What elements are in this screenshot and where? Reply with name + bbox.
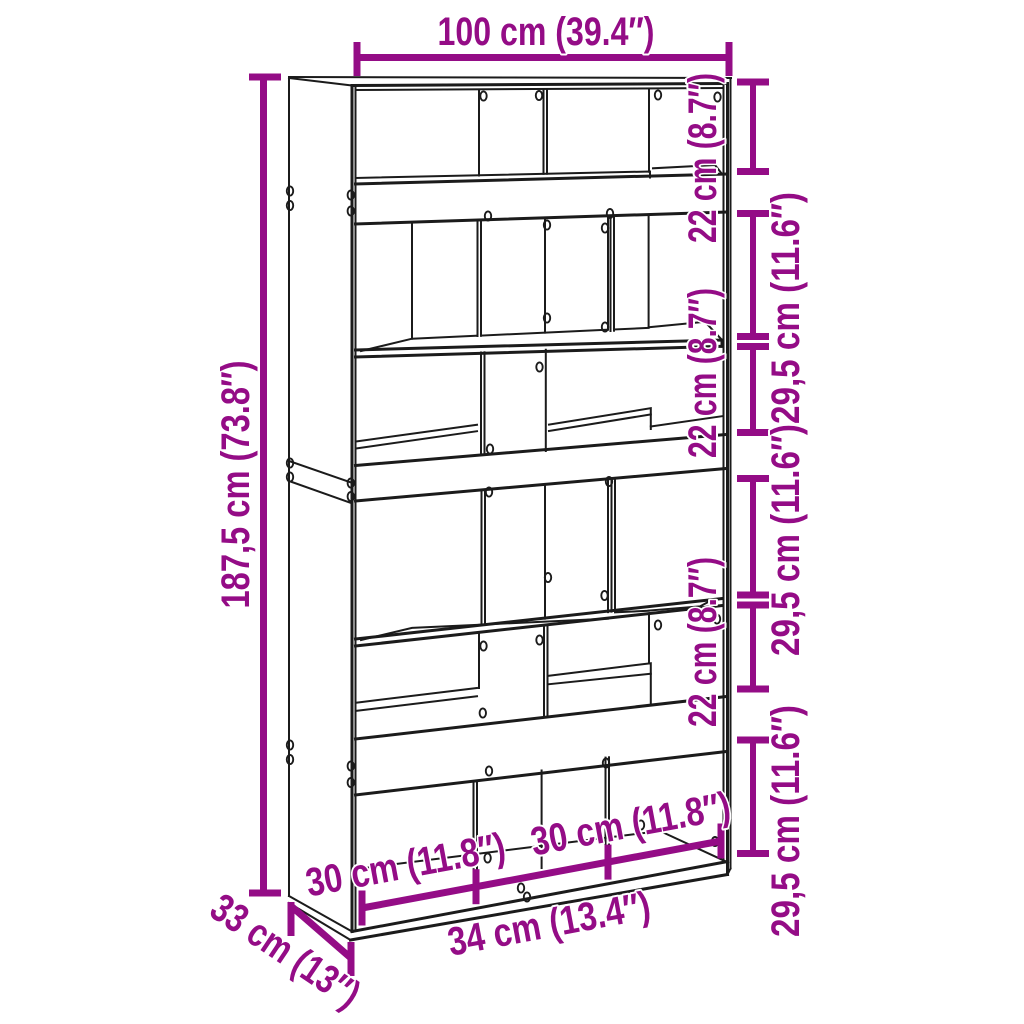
svg-text:100 cm (39.4″): 100 cm (39.4″) (438, 10, 655, 54)
svg-text:22 cm (8.7″): 22 cm (8.7″) (681, 288, 725, 458)
svg-text:30 cm (11.8″): 30 cm (11.8″) (527, 784, 734, 864)
svg-text:29,5 cm (11.6″): 29,5 cm (11.6″) (764, 705, 808, 937)
svg-text:29,5 cm (11.6″): 29,5 cm (11.6″) (764, 424, 808, 656)
svg-text:22 cm (8.7″): 22 cm (8.7″) (681, 557, 725, 727)
svg-text:187,5 cm (73.8″): 187,5 cm (73.8″) (214, 361, 258, 609)
svg-text:22 cm (8.7″): 22 cm (8.7″) (681, 73, 725, 243)
svg-text:29,5 cm (11.6″): 29,5 cm (11.6″) (764, 192, 808, 424)
